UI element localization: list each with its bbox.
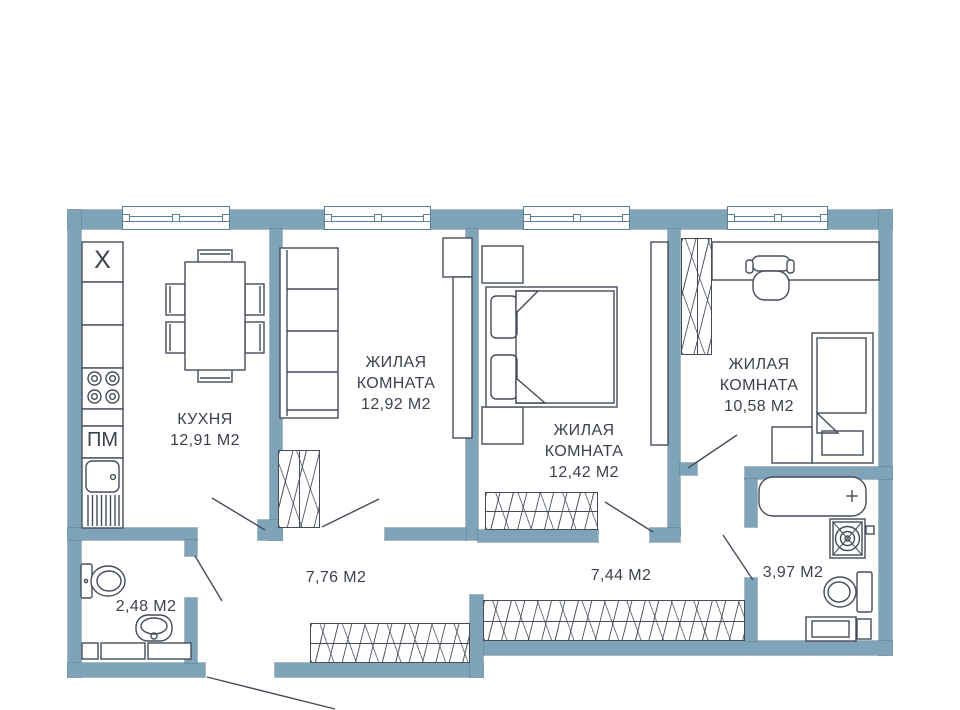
room-label-bathroom: 3,97 М2 — [733, 562, 853, 583]
cabinet — [443, 238, 472, 277]
room-name: КУХНЯ — [130, 409, 280, 430]
chair — [245, 322, 264, 353]
office-chair-back — [752, 256, 790, 271]
room-label-kitchen: КУХНЯ 12,91 М2 — [130, 409, 280, 451]
room-area: 3,97 М2 — [733, 562, 853, 583]
kitchen-cabinet — [82, 325, 123, 368]
room-name: ЖИЛАЯ КОМНАТА — [514, 420, 654, 462]
door-leaf-kitchen — [212, 498, 265, 530]
room-area: 12,92 М2 — [326, 394, 466, 415]
kitchen-counter — [82, 242, 123, 528]
nightstand — [772, 427, 812, 463]
dishwasher-label: ПМ — [82, 429, 123, 452]
bath-cabinet-side — [857, 619, 871, 639]
chair — [245, 284, 264, 315]
door-leaf-entrance — [207, 677, 335, 709]
door-leaf-living2 — [605, 502, 653, 532]
bathroom-fixtures — [759, 477, 874, 641]
wc-cabinet — [82, 643, 98, 659]
room-name: ЖИЛАЯ КОМНАТА — [326, 352, 466, 394]
room-label-hallway-1: 7,76 М2 — [276, 567, 396, 588]
room-name: ЖИЛАЯ КОМНАТА — [689, 354, 829, 396]
desk — [712, 242, 879, 280]
pillow — [491, 296, 517, 338]
floor-plan: КУХНЯ 12,91 М2 ЖИЛАЯ КОМНАТА 12,92 М2 ЖИ… — [0, 0, 960, 710]
room-area: 7,76 М2 — [276, 567, 396, 588]
room-area: 12,91 М2 — [130, 430, 280, 451]
wc-cabinet — [101, 643, 145, 659]
door-leaf-living3 — [688, 435, 737, 468]
room-area: 2,48 М2 — [86, 596, 206, 617]
fridge-label: X — [82, 246, 123, 275]
door-leaf-wc — [195, 556, 222, 601]
tall-cabinet — [651, 242, 668, 445]
room-label-living2: ЖИЛАЯ КОМНАТА 12,42 М2 — [514, 420, 654, 483]
living2-furniture — [482, 242, 668, 445]
room-area: 10,58 М2 — [689, 396, 829, 417]
room-label-living1: ЖИЛАЯ КОМНАТА 12,92 М2 — [326, 352, 466, 415]
office-chair-armrest — [787, 260, 794, 273]
living3-furniture — [712, 242, 879, 463]
chair — [166, 284, 185, 315]
chair — [166, 322, 185, 353]
nightstand — [482, 246, 523, 283]
room-label-wc: 2,48 М2 — [86, 596, 206, 617]
room-area: 7,44 М2 — [561, 565, 681, 586]
office-chair-armrest — [746, 260, 753, 273]
washer-valve — [866, 526, 874, 534]
pillow — [491, 355, 517, 399]
door-leaf-living1 — [322, 499, 379, 527]
office-chair-seat — [753, 271, 789, 300]
dining-table — [185, 262, 245, 370]
room-label-hallway-2: 7,44 М2 — [561, 565, 681, 586]
kitchen-cabinet — [82, 282, 123, 325]
room-label-living3: ЖИЛАЯ КОМНАТА 10,58 М2 — [689, 354, 829, 417]
wc-cabinet — [148, 643, 191, 659]
kitchen-cabinet — [82, 409, 123, 426]
room-area: 12,42 М2 — [514, 462, 654, 483]
dining-set — [166, 250, 264, 382]
toilet-tank — [857, 572, 872, 612]
